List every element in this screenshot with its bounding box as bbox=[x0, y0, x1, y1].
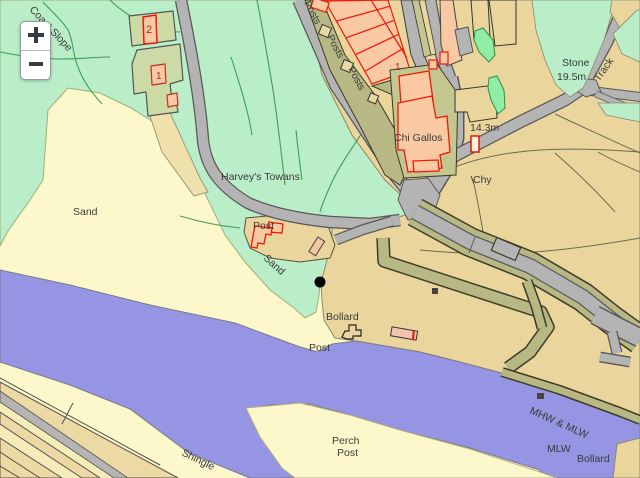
svg-text:Perch: Perch bbox=[332, 435, 360, 447]
svg-text:14.3m: 14.3m bbox=[470, 122, 499, 134]
svg-text:Harvey's Towans: Harvey's Towans bbox=[221, 171, 300, 183]
svg-text:Stone: Stone bbox=[562, 57, 590, 69]
svg-text:Chy: Chy bbox=[473, 174, 492, 186]
svg-text:Bollard: Bollard bbox=[577, 453, 610, 465]
svg-text:2: 2 bbox=[146, 24, 152, 36]
svg-text:1: 1 bbox=[156, 71, 162, 82]
svg-text:19.5m: 19.5m bbox=[557, 71, 586, 83]
svg-text:Sand: Sand bbox=[73, 206, 98, 218]
svg-text:MLW: MLW bbox=[547, 443, 571, 455]
svg-text:Bollard: Bollard bbox=[326, 311, 359, 323]
svg-text:Post: Post bbox=[337, 447, 358, 459]
svg-text:1: 1 bbox=[395, 62, 401, 73]
svg-text:Chi Gallos: Chi Gallos bbox=[394, 132, 442, 144]
svg-text:Post: Post bbox=[253, 220, 274, 232]
svg-text:Post: Post bbox=[309, 342, 330, 354]
